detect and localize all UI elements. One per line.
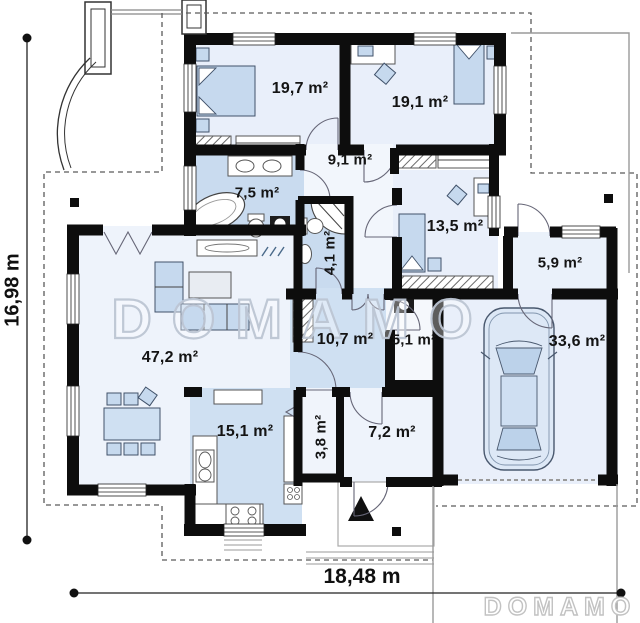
post-marker xyxy=(70,198,79,207)
dining-table-icon xyxy=(104,387,160,455)
window-icon xyxy=(488,196,500,228)
room-label-wc: 4,1 m² xyxy=(322,231,339,276)
window-icon xyxy=(67,274,79,324)
room-label-kitchen: 15,1 m² xyxy=(217,423,274,441)
room-label-bedroom1: 19,7 m² xyxy=(272,80,329,98)
steps xyxy=(224,540,262,550)
room-label-living: 47,2 m² xyxy=(142,349,199,367)
window-icon xyxy=(233,33,275,45)
window-icon xyxy=(98,484,146,496)
room-label-pantry: 3,8 m² xyxy=(313,415,330,460)
post-marker xyxy=(392,527,401,536)
floor-plan-page: DOMAMO DOMAMO 19,7 m² 19,1 m² 9,1 m² 7,5… xyxy=(0,0,640,623)
window-icon xyxy=(494,66,506,114)
window-icon xyxy=(67,386,79,436)
window-icon xyxy=(414,33,456,45)
room-label-bedroom3: 13,5 m² xyxy=(427,218,484,236)
beam xyxy=(111,10,182,14)
room-label-closet: 5,1 m² xyxy=(392,332,437,349)
watermark-corner: DOMAMO xyxy=(484,593,637,621)
console-table-icon xyxy=(197,240,257,256)
steps xyxy=(306,552,434,564)
room-label-entry: 5,9 m² xyxy=(538,255,583,272)
window-icon xyxy=(224,524,264,536)
terrace-arc xyxy=(57,58,90,170)
window-icon xyxy=(562,226,600,238)
vanity-sinks-icon xyxy=(228,156,292,176)
pillar-icon xyxy=(85,2,111,74)
height-dimension-label: 16,98 m xyxy=(2,253,25,326)
post-marker xyxy=(604,194,613,203)
window-icon xyxy=(184,166,196,210)
room-label-bedroom2: 19,1 m² xyxy=(392,94,449,112)
room-label-corridor: 9,1 m² xyxy=(328,152,373,169)
room-label-garage: 33,6 m² xyxy=(549,333,606,351)
window-icon xyxy=(184,64,196,112)
width-dimension-label: 18,48 m xyxy=(323,565,400,589)
room-label-bathroom: 7,5 m² xyxy=(235,185,280,202)
room-label-hall: 10,7 m² xyxy=(317,331,374,349)
room-label-utility: 7,2 m² xyxy=(368,424,415,442)
